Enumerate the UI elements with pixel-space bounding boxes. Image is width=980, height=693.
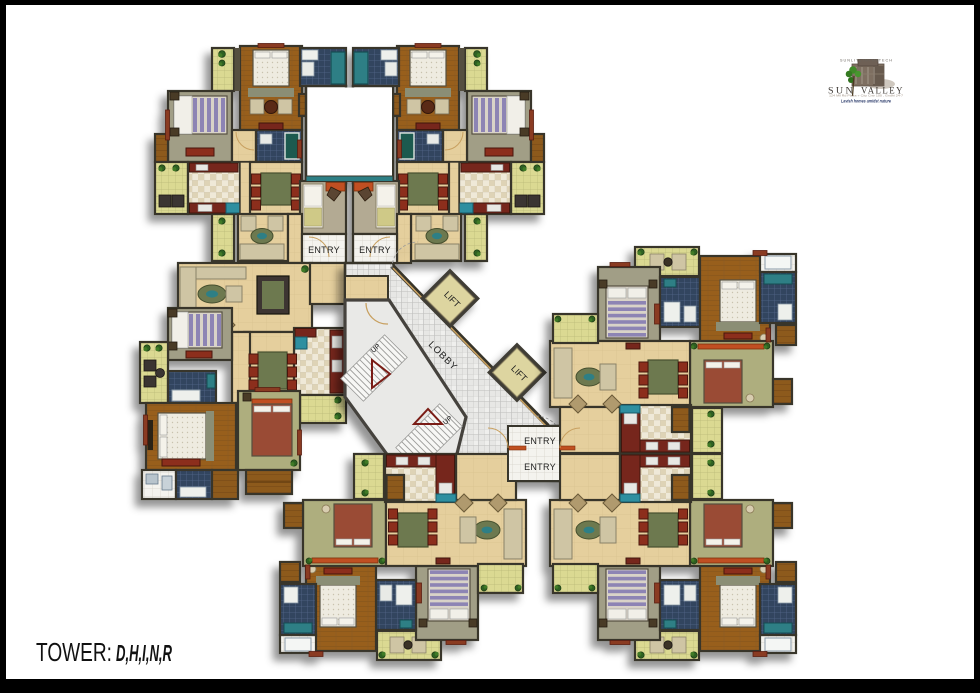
svg-text:ENTRY: ENTRY — [308, 245, 340, 255]
svg-text:Lavish homes amidst nature: Lavish homes amidst nature — [841, 98, 892, 103]
svg-text:124 Mll Rd Plaza + City Cntr 1: 124 Mll Rd Plaza + City Cntr 100 , Gndhi… — [829, 94, 904, 98]
svg-text:ENTRY: ENTRY — [359, 245, 391, 255]
svg-text:ENTRY: ENTRY — [524, 462, 556, 472]
svg-text:D,H,I,N,R: D,H,I,N,R — [116, 640, 172, 666]
svg-text:ENTRY: ENTRY — [524, 436, 556, 446]
svg-text:TOWER:: TOWER: — [36, 637, 112, 667]
svg-text:S U N L I T E I N F R A T E: S U N L I T E I N F R A T E C H — [840, 59, 893, 63]
